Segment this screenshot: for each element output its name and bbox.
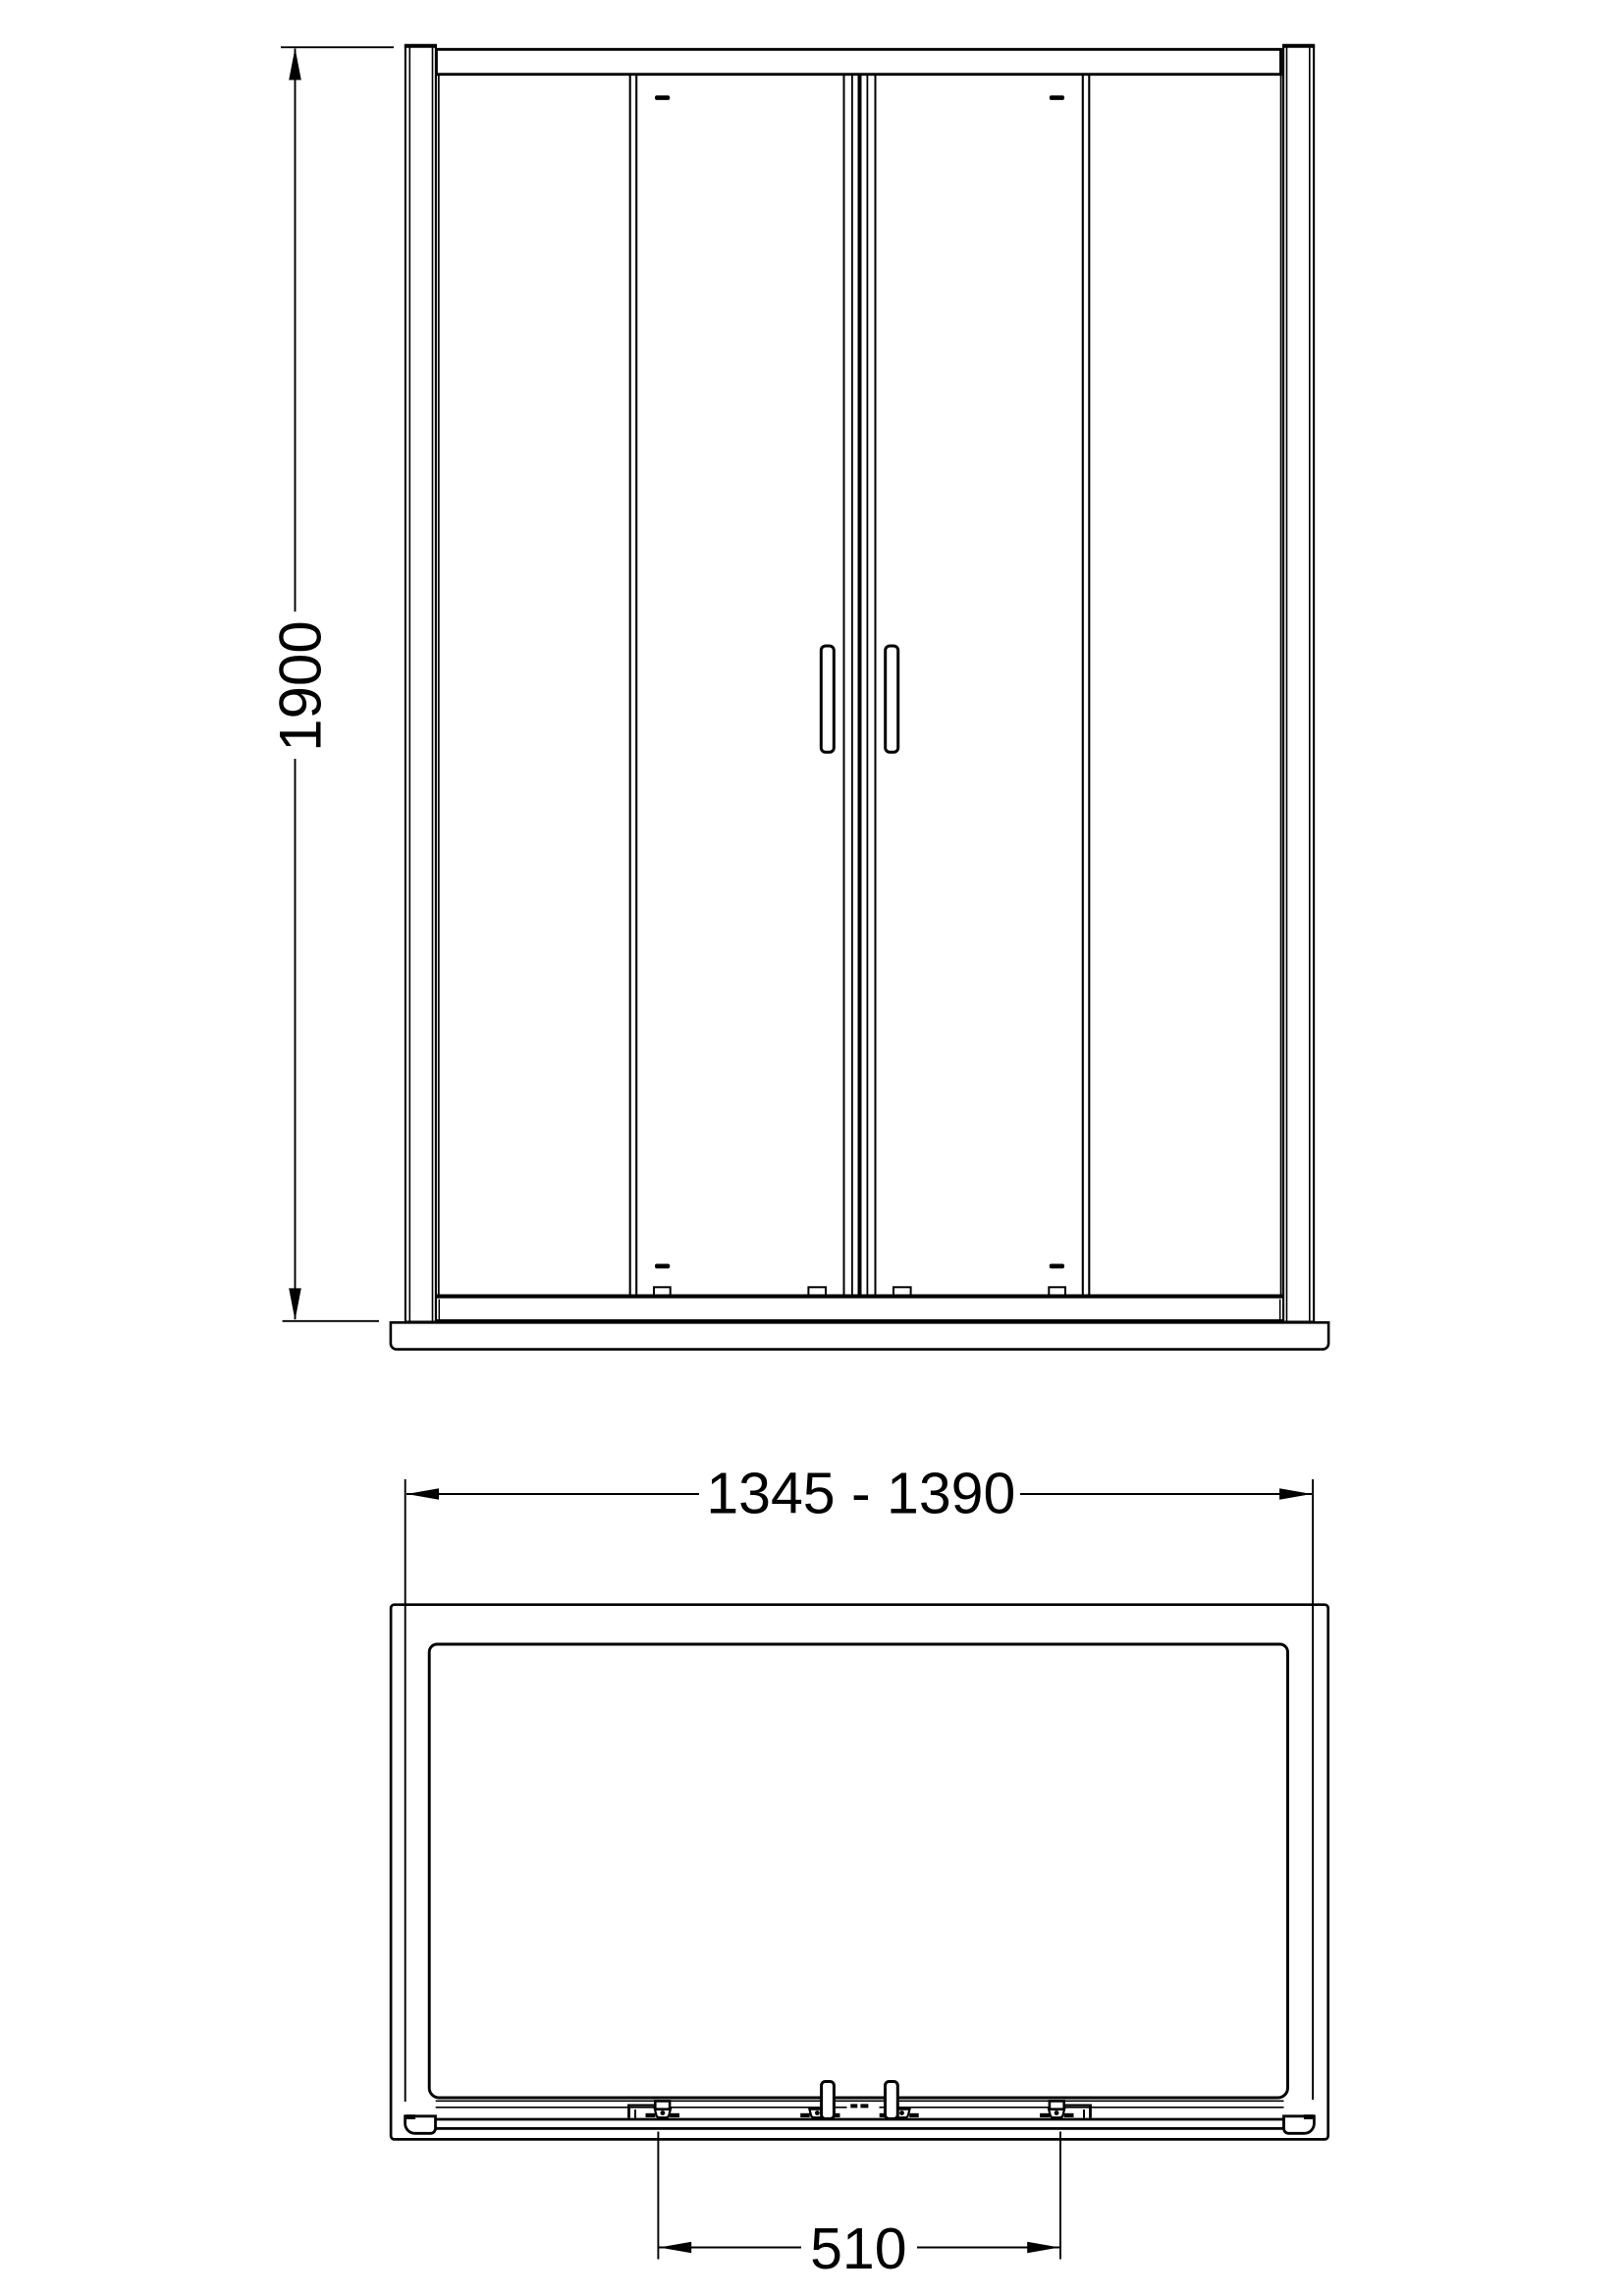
svg-text:1345 - 1390: 1345 - 1390 xyxy=(706,1462,1015,1526)
svg-text:1900: 1900 xyxy=(268,620,334,751)
svg-text:510: 510 xyxy=(810,2216,906,2281)
